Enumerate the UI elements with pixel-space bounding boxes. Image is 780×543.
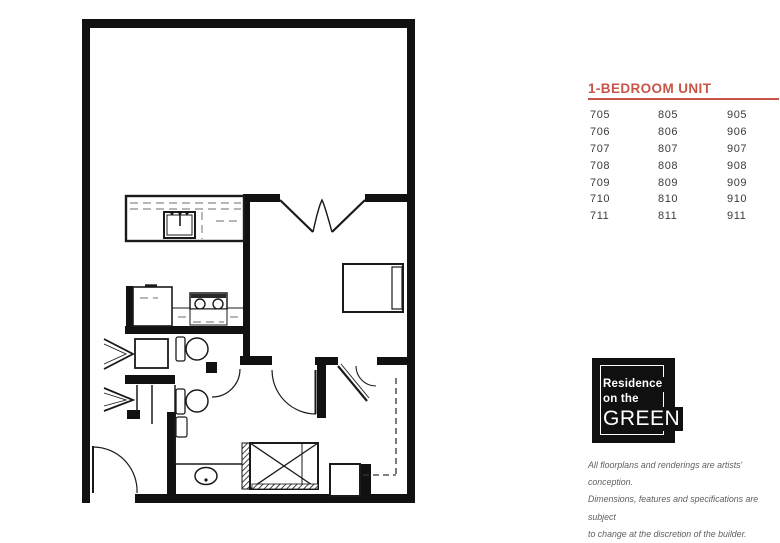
- door-hinge-block: [206, 362, 217, 373]
- kitchen-sink-icon: [164, 211, 195, 238]
- unit-number: 811: [658, 208, 727, 225]
- disclaimer-line: All floorplans and renderings are artist…: [588, 457, 780, 491]
- unit-number: 910: [727, 191, 779, 208]
- unit-number: 810: [658, 191, 727, 208]
- disclaimer-line: Dimensions, features and specifications …: [588, 491, 780, 525]
- disclaimer-text: All floorplans and renderings are artist…: [588, 457, 780, 543]
- disclaimer-line: to change at the discretion of the build…: [588, 526, 780, 543]
- title-underline: [588, 98, 779, 100]
- door-swing-arc: [212, 369, 240, 397]
- unit-number: 905: [727, 107, 779, 124]
- unit-number: 711: [590, 208, 658, 225]
- bathroom-lower: [176, 389, 318, 489]
- door-swing-arc: [356, 366, 376, 386]
- walls: [82, 19, 415, 503]
- bed-icon: [343, 264, 403, 312]
- unit-number: 710: [590, 191, 658, 208]
- stove-icon: [190, 293, 227, 325]
- logo-line-3: GREEN: [603, 407, 683, 431]
- unit-number: 908: [727, 158, 779, 175]
- unit-entry-door: [93, 446, 137, 493]
- fridge-icon: [133, 287, 172, 326]
- unit-number: 707: [590, 141, 658, 158]
- door-swing-arc: [272, 370, 316, 414]
- kitchen-appliances: [133, 286, 243, 327]
- entry-double-door: [280, 200, 365, 232]
- unit-number-grid: 705 805 905 706 806 906 707 807 907 708 …: [590, 107, 779, 225]
- unit-number: 708: [590, 158, 658, 175]
- logo-line-2: on the: [603, 392, 642, 407]
- toilet-icon: [176, 389, 208, 414]
- closet-door: [338, 366, 367, 401]
- logo-residence-on-the-green: Residence on the GREEN: [592, 358, 675, 443]
- unit-number: 706: [590, 124, 658, 141]
- unit-number: 911: [727, 208, 779, 225]
- page-title: 1-BEDROOM UNIT: [588, 81, 779, 96]
- logo-line-1: Residence: [603, 377, 665, 392]
- kitchen-island: [126, 196, 244, 241]
- washer-icon: [135, 339, 168, 368]
- unit-number: 807: [658, 141, 727, 158]
- unit-number: 705: [590, 107, 658, 124]
- unit-number: 709: [590, 175, 658, 192]
- shower-icon: [242, 443, 318, 489]
- unit-number: 907: [727, 141, 779, 158]
- door-swing-arc: [93, 447, 137, 493]
- unit-number: 808: [658, 158, 727, 175]
- unit-number: 806: [658, 124, 727, 141]
- bathroom-upper: [135, 337, 240, 397]
- unit-number: 805: [658, 107, 727, 124]
- toilet-icon: [176, 337, 208, 361]
- unit-number: 906: [727, 124, 779, 141]
- unit-number: 809: [658, 175, 727, 192]
- closet-cabinet: [330, 464, 360, 496]
- unit-number: 909: [727, 175, 779, 192]
- bathroom-sink-icon: [195, 468, 217, 485]
- pillow-icon: [392, 267, 402, 309]
- logo-text: Residence on the GREEN: [603, 377, 683, 431]
